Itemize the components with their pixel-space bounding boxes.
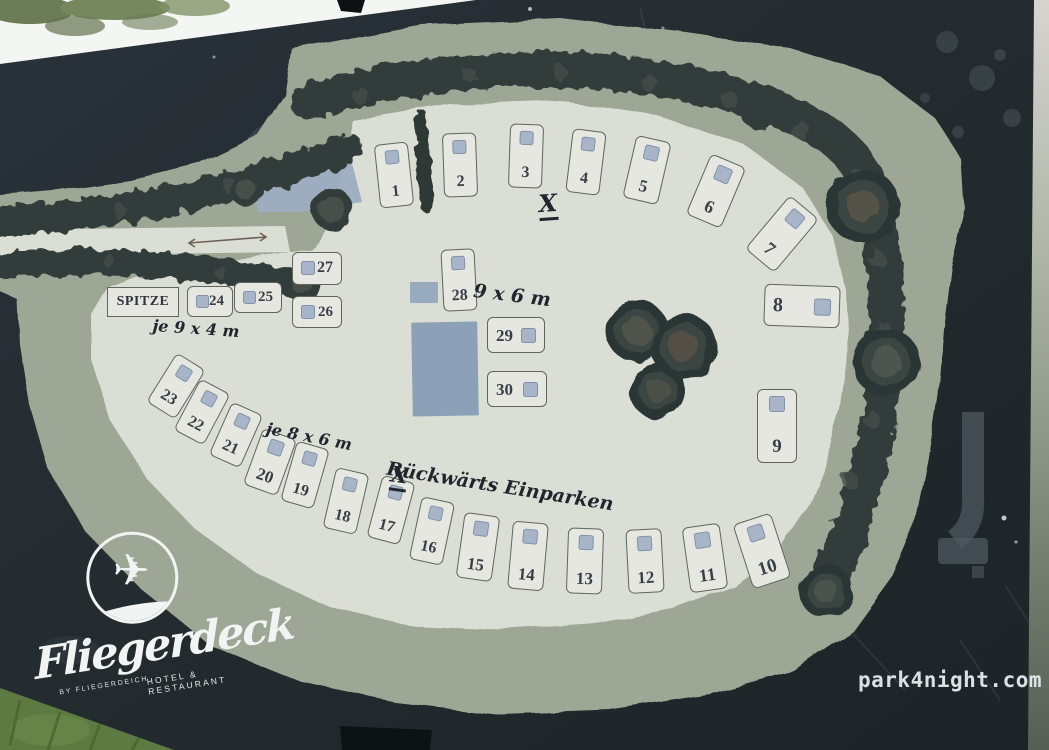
- spot-marker: [693, 531, 711, 549]
- map-overlay: 1234567891011121314151617181920212223242…: [0, 0, 1049, 750]
- spot-number: 23: [158, 387, 180, 409]
- parking-spot-9: 9: [757, 389, 797, 463]
- spot-number: 10: [755, 556, 779, 580]
- spot-number: 30: [496, 381, 513, 398]
- spot-marker: [243, 291, 256, 304]
- parking-spot-3: 3: [508, 123, 544, 188]
- spot-marker: [769, 396, 785, 412]
- spot-number: 15: [466, 555, 485, 574]
- spot-marker: [233, 412, 251, 430]
- airplane-icon: ✈: [112, 545, 150, 597]
- parking-spot-13: 13: [566, 527, 604, 594]
- spot-number: 9: [772, 437, 782, 456]
- spot-marker: [642, 144, 660, 162]
- spot-marker: [521, 328, 536, 343]
- parking-spot-15: 15: [456, 512, 501, 582]
- parking-spot-26: 26: [292, 296, 342, 328]
- parking-spot-28: 28: [440, 248, 477, 312]
- parking-spot-29: 29: [487, 317, 545, 353]
- spot-marker: [451, 256, 466, 271]
- parking-spot-16: 16: [409, 496, 456, 566]
- spot-number: 19: [291, 480, 311, 500]
- parking-spot-27: 27: [292, 252, 342, 285]
- spot-marker: [200, 389, 219, 408]
- spot-number: 18: [333, 507, 352, 526]
- spot-marker: [522, 528, 538, 544]
- spot-number: 20: [254, 465, 276, 487]
- spot-marker: [472, 520, 489, 537]
- spot-number: 12: [637, 569, 655, 587]
- spot-marker: [301, 261, 315, 275]
- spot-marker: [636, 536, 652, 552]
- spot-number: 2: [456, 174, 465, 190]
- area-label-spitze: SPITZE: [107, 287, 179, 317]
- annotation-x-top: X: [538, 191, 559, 221]
- spot-number: 21: [220, 437, 241, 458]
- spot-number: 6: [702, 197, 717, 217]
- spot-marker: [784, 207, 807, 230]
- spot-number: 3: [521, 165, 530, 181]
- spot-number: 22: [185, 414, 207, 436]
- logo-circle: ✈: [80, 525, 185, 630]
- parking-spot-10: 10: [732, 512, 791, 589]
- parking-spot-1: 1: [374, 141, 415, 208]
- spot-number: 28: [451, 288, 468, 305]
- parking-spot-6: 6: [686, 153, 747, 229]
- spot-number: 8: [773, 295, 784, 315]
- spot-number: 17: [377, 517, 397, 537]
- spot-marker: [814, 298, 832, 316]
- spot-marker: [301, 450, 318, 467]
- spot-number: 13: [576, 570, 594, 588]
- spot-number: 25: [258, 290, 273, 305]
- parking-spot-7: 7: [745, 195, 819, 273]
- spot-marker: [580, 136, 596, 152]
- parking-spot-18: 18: [322, 467, 369, 535]
- spot-marker: [519, 131, 533, 145]
- parking-spot-5: 5: [622, 135, 671, 205]
- spot-number: 11: [698, 565, 717, 585]
- spot-marker: [427, 505, 444, 522]
- watermark: park4night.com: [858, 668, 1042, 692]
- annotation-dim-9x6: 9 x 6 m: [472, 282, 551, 310]
- parking-spot-24: 24: [187, 286, 233, 317]
- spot-marker: [746, 523, 766, 543]
- parking-spot-11: 11: [682, 523, 729, 594]
- parking-spot-12: 12: [625, 528, 664, 594]
- spot-marker: [452, 140, 466, 154]
- site-map-photo: 1234567891011121314151617181920212223242…: [0, 0, 1049, 750]
- spot-number: 24: [209, 294, 224, 309]
- spot-number: 5: [637, 177, 649, 195]
- spot-number: 4: [579, 170, 589, 187]
- spot-marker: [713, 164, 734, 185]
- spot-number: 7: [761, 239, 779, 259]
- spot-marker: [523, 382, 538, 397]
- brand-logo: ✈ Fliegerdeck BY FLIEGERDEICH HOTEL & RE…: [14, 512, 277, 714]
- parking-spot-2: 2: [442, 132, 478, 197]
- annotation-dim-9x4: je 9 x 4 m: [152, 318, 240, 340]
- spot-marker: [196, 295, 209, 308]
- spot-marker: [301, 305, 315, 319]
- parking-spot-30: 30: [487, 371, 547, 407]
- parking-spot-8: 8: [763, 284, 840, 329]
- spot-number: 26: [318, 305, 333, 320]
- spot-marker: [384, 149, 399, 164]
- spot-number: 29: [496, 327, 513, 344]
- spot-number: 1: [391, 184, 401, 201]
- spot-number: 27: [317, 260, 333, 276]
- parking-spot-4: 4: [565, 128, 607, 196]
- parking-spot-14: 14: [507, 521, 549, 592]
- spot-marker: [341, 476, 358, 493]
- parking-spot-25: 25: [234, 282, 282, 313]
- spot-marker: [174, 364, 193, 383]
- spot-marker: [578, 535, 594, 551]
- spot-number: 16: [419, 538, 438, 557]
- spot-number: 14: [517, 565, 535, 583]
